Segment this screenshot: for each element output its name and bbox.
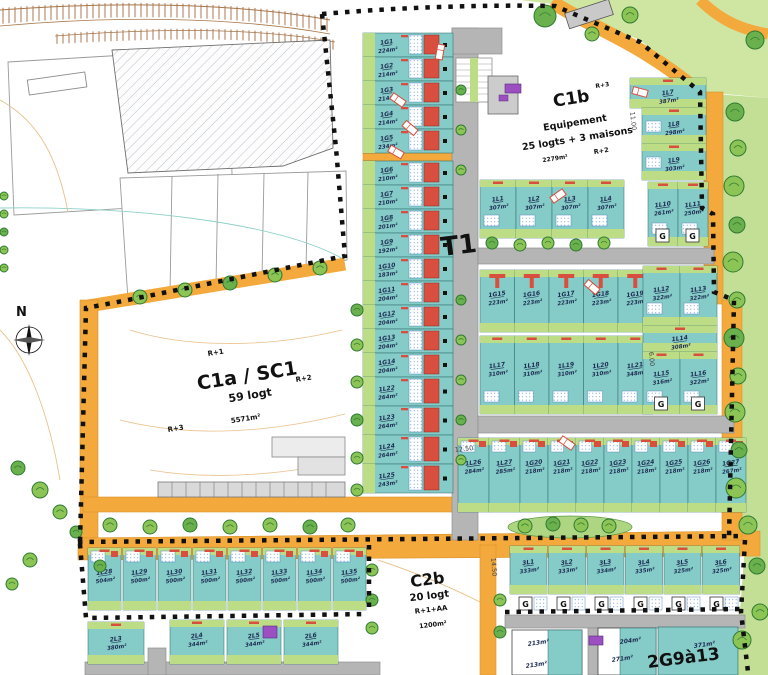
terrace (556, 215, 571, 226)
garage-letter: G (695, 400, 702, 409)
lot-1G13: 1G13204m² (363, 329, 453, 353)
tree-icon (456, 165, 466, 175)
garage-red (424, 187, 439, 206)
tree-icon (351, 376, 363, 388)
terrace (409, 35, 422, 54)
lot-1G26: 1G26218m² (688, 438, 716, 512)
terrace (409, 83, 422, 102)
terrace (231, 551, 245, 562)
lot-1G2: 1G2214m² (363, 57, 453, 81)
tree-icon (456, 375, 466, 385)
lot-1G5: 1G5234m² (363, 129, 453, 153)
terrace (663, 441, 676, 452)
terrace (635, 441, 648, 452)
terrace (126, 551, 140, 562)
utility-box-purple (505, 84, 521, 93)
terrace (409, 211, 422, 230)
terrace (646, 157, 661, 168)
garage-red (424, 131, 439, 150)
garage-box: G (692, 397, 705, 410)
tree-icon (6, 578, 18, 590)
terrace (409, 235, 422, 254)
terrace (409, 259, 422, 278)
site-plan: 1G1224m²1G2214m²1G3214m²1G4214m²1G5234m²… (0, 0, 768, 675)
tree-icon (534, 5, 556, 27)
tree-icon (103, 518, 117, 532)
lot-1G17: 1G17223m² (549, 270, 584, 332)
lot-1G10: 1G10183m² (363, 257, 453, 281)
tree-icon (749, 558, 765, 574)
tree-icon (0, 210, 8, 218)
lot-1L32: 1L32500m² (228, 548, 261, 610)
garage-red (424, 107, 439, 126)
tree-icon (183, 518, 197, 532)
terrace (534, 597, 547, 610)
garage-red (424, 83, 439, 102)
tree-icon (456, 85, 466, 95)
tree-icon (143, 520, 157, 534)
tree-icon (456, 455, 466, 465)
lot-1L29: 1L29500m² (123, 548, 156, 610)
tree-icon (726, 103, 744, 121)
lot-1G24: 1G24218m² (632, 438, 660, 512)
terrace (579, 441, 592, 452)
terrace (266, 551, 280, 562)
terrace (523, 441, 536, 452)
garage-red (424, 437, 439, 461)
lot-1L2: 1L2307m² (516, 180, 552, 238)
lot-1L19: 1L19310m² (549, 336, 584, 414)
terrace (610, 597, 623, 610)
tree-icon (546, 517, 560, 531)
tree-icon (725, 402, 745, 422)
garage-box: G (686, 229, 699, 242)
lot-1G25: 1G25218m² (660, 438, 688, 512)
lot-1L35: 1L35500m² (333, 548, 366, 610)
tree-icon (0, 192, 8, 200)
lot-1G23: 1G23218m² (604, 438, 632, 512)
lot-3L1: 3L1333m² (510, 546, 547, 594)
tree-icon (570, 239, 582, 251)
lot-1G3: 1G3214m² (363, 81, 453, 105)
terrace (691, 441, 704, 452)
red-t-mark (489, 274, 505, 278)
lot-3L5: 3L5325m² (664, 546, 701, 594)
terrace (647, 303, 662, 314)
terrace (161, 551, 175, 562)
lot-1L17: 1L17310m² (480, 336, 515, 414)
lot-1L3: 1L3307m² (552, 180, 588, 238)
lot-1L34: 1L34500m² (298, 548, 331, 610)
red-t-mark (627, 274, 643, 278)
tree-icon (32, 482, 48, 498)
tree-icon (514, 239, 526, 251)
terrace (622, 391, 637, 402)
tree-icon (351, 339, 363, 351)
tree-icon (752, 604, 768, 620)
garage-letter: G (637, 600, 644, 609)
tree-icon (730, 140, 746, 156)
utility-box-purple (263, 626, 277, 638)
garage-red (424, 163, 439, 182)
lot-2L3: 2L3380m² (88, 622, 144, 664)
tree-icon (263, 518, 277, 532)
dim-600: 6.00 (647, 351, 656, 366)
tree-icon (456, 415, 466, 425)
terrace (572, 597, 585, 610)
tree-icon (585, 27, 599, 41)
lot-1L31: 1L31500m² (193, 548, 226, 610)
terrace (409, 163, 422, 182)
terrace (409, 408, 422, 432)
lot-1L9: 1L9303m² (642, 144, 706, 180)
lot-3L2: 3L2333m² (549, 546, 586, 594)
lot-1G6: 1G6210m² (363, 161, 453, 185)
tree-icon (739, 516, 757, 534)
lot-1L13: 1L13322m² (680, 266, 717, 326)
lot-1L20: 1L20310m² (584, 336, 619, 414)
red-t-mark (558, 274, 574, 278)
lot-1L1: 1L1307m² (480, 180, 516, 238)
tree-icon (602, 519, 616, 533)
garage-letter: G (658, 400, 665, 409)
terrace (409, 379, 422, 403)
lot-1L25: 1L25243m² (363, 464, 453, 493)
garage-red (424, 211, 439, 230)
tree-icon (351, 304, 363, 316)
terrace (301, 551, 315, 562)
lot-1G15: 1G15223m² (480, 270, 515, 332)
lot-1G11: 1G11204m² (363, 281, 453, 305)
terrace (684, 303, 699, 314)
tree-icon (11, 461, 25, 475)
tree-icon (494, 594, 506, 606)
lot-1L22: 1L22264m² (363, 377, 453, 406)
lot-1G14: 1G14204m² (363, 353, 453, 377)
tree-icon (0, 264, 8, 272)
site-plan-svg: 1G1224m²1G2214m²1G3214m²1G4214m²1G5234m²… (0, 0, 768, 675)
lot-1L12: 1L12322m² (643, 266, 680, 326)
lot-1L30: 1L30500m² (158, 548, 191, 610)
tree-icon (723, 252, 743, 272)
garage-letter: G (560, 600, 567, 609)
tree-icon (303, 520, 317, 534)
tree-icon (456, 125, 466, 135)
garage-red (424, 331, 439, 350)
garage-letter: G (522, 600, 529, 609)
lot-1G20: 1G20218m² (520, 438, 548, 512)
lot-1L4: 1L4307m² (588, 180, 624, 238)
tree-icon (486, 237, 498, 249)
terrace (336, 551, 350, 562)
tree-icon (223, 520, 237, 534)
terrace (484, 391, 499, 402)
lot-1G12: 1G12204m² (363, 305, 453, 329)
terrace (553, 391, 568, 402)
lot-1G8: 1G8201m² (363, 209, 453, 233)
garage-box: G (656, 229, 669, 242)
terrace (646, 121, 661, 132)
garage-red (424, 355, 439, 374)
lot-1L8: 1L8298m² (642, 108, 706, 144)
terrace (409, 355, 422, 374)
tree-icon (731, 442, 747, 458)
tree-icon (23, 553, 37, 567)
terrace (519, 391, 534, 402)
tree-icon (518, 519, 532, 533)
tree-icon (351, 414, 363, 426)
garage-red (424, 235, 439, 254)
red-t-mark (593, 274, 609, 278)
terrace (409, 107, 422, 126)
terrace (492, 441, 506, 452)
tree-icon (0, 228, 8, 236)
tree-icon (456, 335, 466, 345)
garage-red (424, 307, 439, 326)
tree-icon (0, 246, 8, 254)
t1-label: T1 (439, 229, 478, 263)
garage-red (424, 466, 439, 490)
tree-icon (598, 237, 610, 249)
lot-1L18: 1L18310m² (515, 336, 550, 414)
terrace (409, 307, 422, 326)
tree-icon (729, 217, 745, 233)
terrace (592, 215, 607, 226)
terrace (409, 437, 422, 461)
tree-icon (313, 261, 327, 275)
terrace (687, 597, 700, 610)
lot-2L6: 2L6344m² (284, 620, 338, 664)
tree-icon (494, 626, 506, 638)
tree-icon (341, 518, 355, 532)
terrace (409, 59, 422, 78)
garage-box: G (655, 397, 668, 410)
garage-letter: G (598, 600, 605, 609)
garage-box: G (519, 597, 532, 610)
lot-1L23: 1L23264m² (363, 406, 453, 435)
tree-icon (53, 505, 67, 519)
garage-red (424, 259, 439, 278)
lot-1L27: 1L27285m² (489, 438, 520, 512)
garage-red (424, 379, 439, 403)
tree-icon (729, 292, 745, 308)
tree-icon (94, 560, 106, 572)
lot-1L28: 1L28504m² (88, 548, 121, 610)
tree-icon (746, 31, 764, 49)
tree-icon (351, 484, 363, 496)
garage-red (424, 59, 439, 78)
garage-box: G (595, 597, 608, 610)
lot-1L33: 1L33500m² (263, 548, 296, 610)
terrace (607, 441, 620, 452)
tree-icon (574, 518, 588, 532)
garage-letter: G (689, 232, 696, 241)
terrace (409, 331, 422, 350)
lot-3L3: 3L3334m² (587, 546, 624, 594)
lot-1L14: 1L14308m² (643, 326, 717, 352)
tree-icon (622, 7, 638, 23)
lot-1L24: 1L24264m² (363, 435, 453, 464)
lot-3L4: 3L4335m² (626, 546, 663, 594)
tree-icon (366, 622, 378, 634)
terrace (588, 391, 603, 402)
garage-red (424, 408, 439, 432)
terrace (409, 466, 422, 490)
terrace (409, 283, 422, 302)
tree-icon (456, 295, 466, 305)
lot-3L6: 3L6325m² (703, 546, 740, 594)
dim-1450: 14.50 (489, 557, 499, 576)
terrace (409, 187, 422, 206)
utility-box-purple-small (499, 95, 508, 101)
garage-letter: G (659, 232, 666, 241)
red-t-mark (524, 274, 540, 278)
terrace (484, 215, 499, 226)
terrace (520, 215, 535, 226)
terrace (196, 551, 210, 562)
garage-box: G (557, 597, 570, 610)
lot-2L4: 2L4344m² (170, 620, 224, 664)
lot-1G7: 1G7210m² (363, 185, 453, 209)
tree-icon (724, 176, 744, 196)
lot-1G16: 1G16223m² (515, 270, 550, 332)
tree-icon (351, 452, 363, 464)
lot-1G22: 1G22218m² (576, 438, 604, 512)
compass-n-label: N (16, 305, 27, 320)
garage-red (424, 283, 439, 302)
tree-icon (542, 237, 554, 249)
utility-box-purple (589, 636, 603, 645)
garage-box: G (710, 597, 723, 610)
